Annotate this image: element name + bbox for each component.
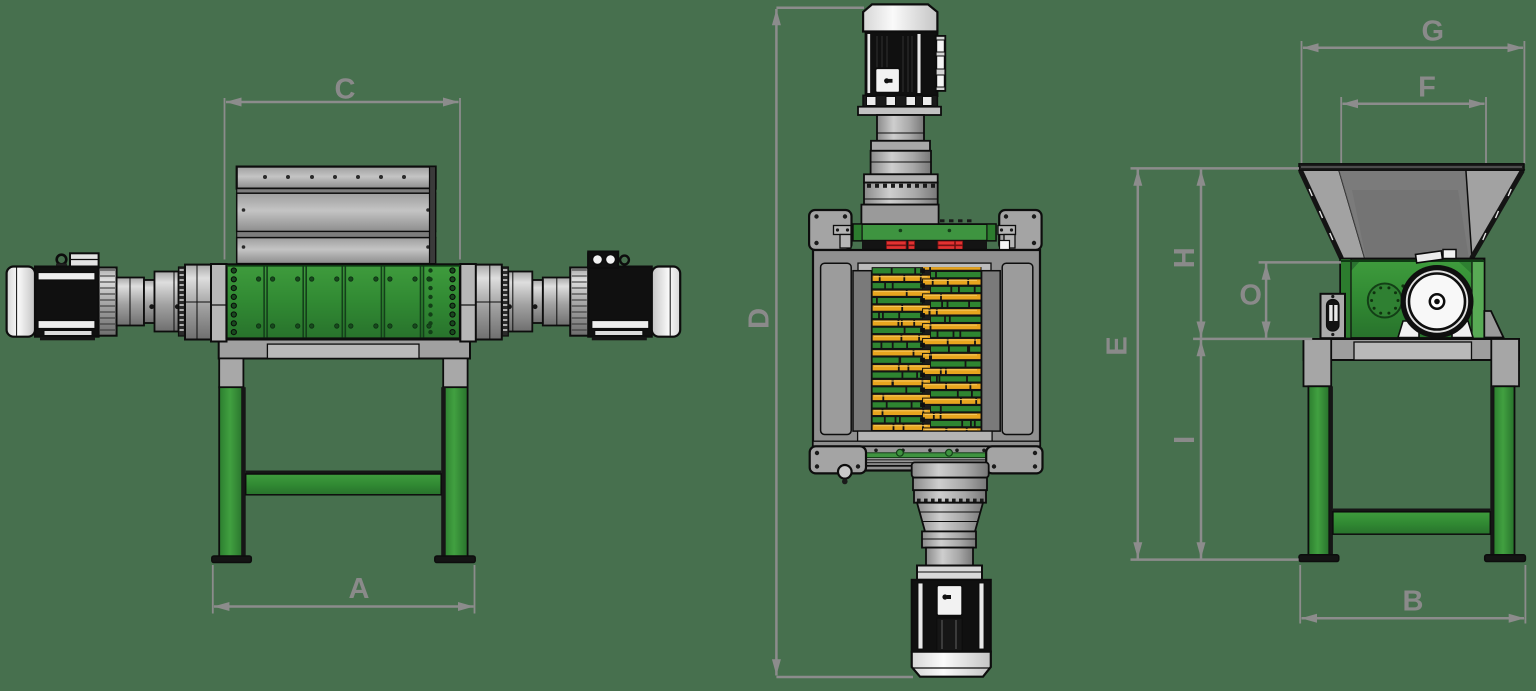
svg-text:A: A — [349, 573, 370, 605]
svg-text:I: I — [1169, 436, 1201, 444]
svg-text:G: G — [1422, 15, 1445, 47]
svg-text:E: E — [1102, 336, 1134, 355]
svg-text:H: H — [1169, 247, 1201, 268]
svg-text:C: C — [335, 74, 356, 106]
svg-text:D: D — [744, 308, 776, 329]
svg-text:O: O — [1239, 280, 1262, 312]
svg-text:F: F — [1418, 71, 1436, 103]
svg-text:B: B — [1403, 586, 1424, 618]
